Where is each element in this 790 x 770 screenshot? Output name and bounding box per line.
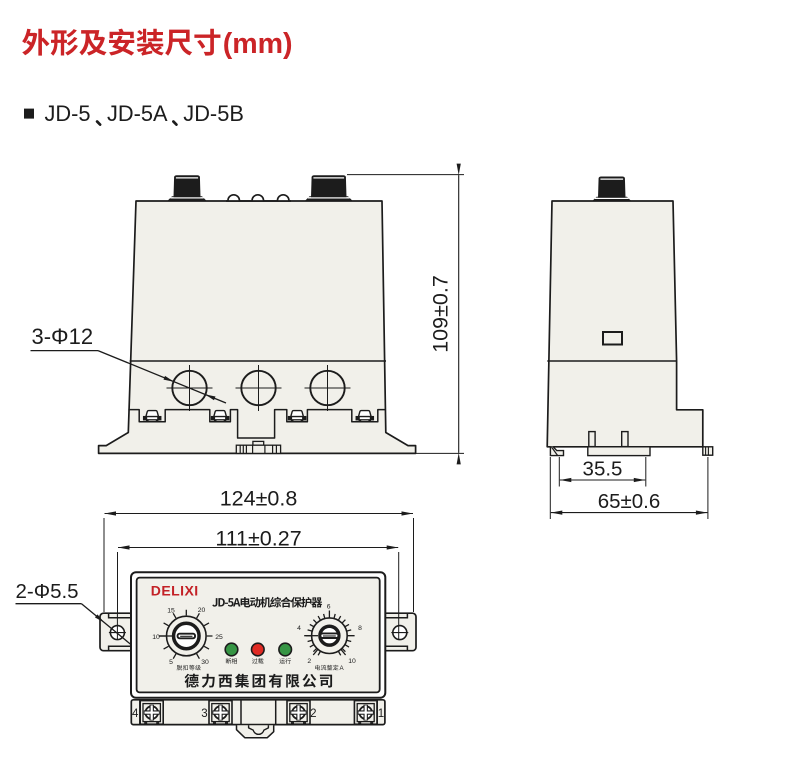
svg-text:25: 25 <box>215 634 223 641</box>
svg-text:35.5: 35.5 <box>583 458 623 481</box>
svg-text:JD-5: JD-5 <box>45 101 91 126</box>
svg-text:4: 4 <box>297 625 301 632</box>
svg-text:5: 5 <box>169 659 173 666</box>
svg-text:2: 2 <box>307 658 311 665</box>
svg-text:109±0.7: 109±0.7 <box>428 275 452 353</box>
svg-text:15: 15 <box>167 608 175 615</box>
svg-text:6: 6 <box>327 604 331 611</box>
svg-text:1: 1 <box>378 708 384 720</box>
svg-text:DELIXI: DELIXI <box>151 583 199 599</box>
svg-text:(mm): (mm) <box>223 28 293 60</box>
svg-text:2: 2 <box>310 708 316 720</box>
svg-text:10: 10 <box>152 634 160 641</box>
svg-text:8: 8 <box>358 625 362 632</box>
svg-text:65±0.6: 65±0.6 <box>598 490 661 513</box>
svg-text:2-Φ5.5: 2-Φ5.5 <box>16 580 79 603</box>
svg-text:3-Φ12: 3-Φ12 <box>32 324 94 349</box>
svg-text:JD-5B: JD-5B <box>183 101 244 126</box>
svg-text:124±0.8: 124±0.8 <box>220 487 298 511</box>
svg-text:30: 30 <box>201 659 209 666</box>
svg-text:111±0.27: 111±0.27 <box>215 527 301 551</box>
svg-text:4: 4 <box>132 708 139 720</box>
svg-text:JD-5A: JD-5A <box>107 101 168 126</box>
svg-text:3: 3 <box>201 708 207 720</box>
svg-text:20: 20 <box>198 607 206 614</box>
svg-text:10: 10 <box>348 658 356 665</box>
